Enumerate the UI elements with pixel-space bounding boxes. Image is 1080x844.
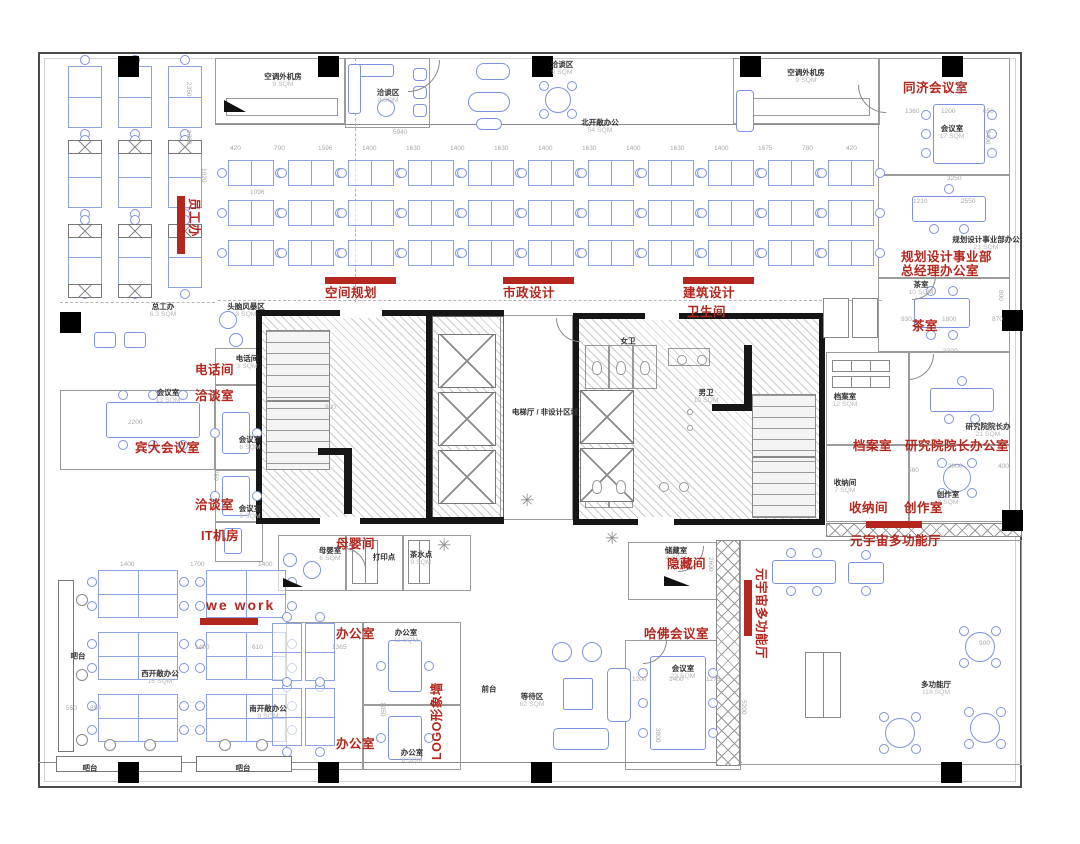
desk-chair (757, 168, 767, 178)
zone-label: 洽谈室 (195, 499, 234, 512)
sink-fixture (697, 355, 707, 365)
zone-label: we work (206, 598, 275, 612)
dimension-text: 1400 (714, 146, 728, 153)
structural-column (318, 56, 339, 77)
workstation-divider (311, 200, 312, 226)
zone-label-bar (683, 277, 754, 284)
room-area: 10 SQM (909, 289, 934, 296)
black-wall (432, 310, 504, 316)
dimension-text: 700 (274, 146, 285, 153)
zone-label: 研究院院长办公室 (905, 440, 1009, 453)
desk-chair (315, 747, 325, 757)
desk-chair (217, 208, 227, 218)
room-name: 茶水点 (410, 550, 433, 559)
workstation-divider (551, 200, 552, 226)
room-label: 收纳间7 SQM (834, 478, 857, 494)
dimension-text: 3800 (654, 728, 661, 742)
room-name: 多功能厅 (921, 680, 951, 689)
desk-chair (87, 663, 97, 673)
room-label: 茶室10 SQM (909, 280, 934, 296)
room-label: 吧台 (71, 652, 86, 661)
sink-fixture (677, 355, 687, 365)
room-name: 洽谈区 (551, 60, 574, 69)
workstation-divider (611, 160, 612, 186)
dimension-text: 900 (979, 641, 990, 648)
desk-chair (638, 698, 648, 708)
storage-cross-unit (118, 284, 152, 298)
desk-chair (959, 658, 969, 668)
dimension-text: 1596 (318, 146, 332, 153)
dimension-text: 400 (998, 464, 1009, 471)
desk-chair (817, 208, 827, 218)
desk-chair (817, 248, 827, 258)
desk-chair (376, 733, 386, 743)
desk-chair (337, 208, 347, 218)
room-name: 会议室 (671, 664, 696, 673)
round-table (885, 718, 915, 748)
cabinet-cell (852, 361, 871, 371)
cabinet (832, 376, 890, 388)
round-table (582, 642, 602, 662)
dimension-text: 1050 (379, 702, 386, 716)
desk-chair (287, 601, 297, 611)
dimension-text: 1800 (942, 317, 956, 324)
dimension-text: 2600 (707, 557, 714, 571)
structural-column (531, 762, 552, 783)
desk-chair (87, 577, 97, 587)
workstation-divider (551, 160, 552, 186)
dimension-text: 850 (90, 706, 101, 713)
storage-cross-unit (68, 284, 102, 298)
desk-chair (179, 639, 189, 649)
room-name: 北开敞办公 (581, 118, 619, 127)
room-label: 档案室12 SQM (833, 392, 858, 408)
dimension-text: 550 (66, 706, 77, 713)
desk-chair (996, 707, 1006, 717)
bar-stool (76, 734, 88, 746)
dimension-text: 2000 (948, 464, 962, 471)
workstation-divider (311, 240, 312, 266)
room-label: 办公室11 SQM (394, 628, 418, 644)
room-area: 6 SQM (239, 513, 262, 520)
round-table (283, 553, 297, 567)
black-wall (712, 404, 752, 411)
room-label: 会议室6 SQM (239, 504, 262, 520)
room-label: 电梯厅 / 非设计区域 (512, 408, 578, 417)
bench-divider (168, 97, 202, 98)
room-area: 9 SQM (249, 713, 287, 720)
room-label: 洽谈区9 SQM (551, 60, 574, 76)
desk-chair (637, 248, 647, 258)
door-wedge (664, 576, 690, 586)
workstation-divider (851, 240, 852, 266)
dimension-text: 1630 (406, 146, 420, 153)
storage-cross-unit (118, 224, 152, 238)
meeting-table (124, 332, 146, 348)
room-area: 54 SQM (581, 127, 619, 134)
desk-chair (539, 109, 549, 119)
structural-column (60, 312, 81, 333)
dimension-text: 1630 (582, 146, 596, 153)
elevator-shaft (438, 392, 496, 446)
desk-chair (315, 677, 325, 687)
desk-chair (757, 248, 767, 258)
black-wall (432, 517, 504, 524)
cabinet-cell (824, 653, 841, 717)
black-wall (344, 448, 352, 514)
desk-chair (567, 81, 577, 91)
room-name: 打印点 (373, 553, 396, 562)
toilet-fixture (592, 480, 602, 494)
desk-chair (315, 612, 325, 622)
structural-column (118, 762, 139, 783)
bench-divider (272, 652, 302, 653)
room-name: 会议室 (940, 124, 965, 133)
pod-divider (98, 656, 178, 657)
desk-chair (457, 168, 467, 178)
room-label: 总工办6.3 SQM (150, 302, 177, 318)
wall-opening (645, 309, 679, 320)
room-label: 研究院院长办21 SQM (966, 422, 1011, 438)
room-area: 9 SQM (787, 77, 825, 84)
desk-chair (577, 248, 587, 258)
desk-chair (179, 701, 189, 711)
workstation-divider (791, 200, 792, 226)
desk-chair (80, 55, 90, 65)
desk-chair (179, 725, 189, 735)
desk-chair (397, 248, 407, 258)
toilet-fixture (616, 480, 626, 494)
room-label: 吧台 (83, 764, 98, 773)
cabinet-cell (853, 299, 877, 337)
desk-chair (959, 224, 969, 234)
meeting-table (848, 562, 884, 584)
room-name: 会议室 (239, 435, 262, 444)
room-area: 9 SQM (551, 69, 574, 76)
room-name: 规划设计事业部办公 (952, 235, 1020, 244)
room-label: 洽谈区9 SQM (377, 88, 400, 104)
desk-chair (517, 168, 527, 178)
black-wall (318, 448, 352, 455)
cabinet-cell (833, 377, 852, 387)
desk-chair (179, 663, 189, 673)
dimension-text: 1700 (190, 562, 204, 569)
room-label: 女卫 (621, 337, 636, 346)
room-label: 空调外机房9 SQM (787, 68, 825, 84)
cabinet-cell (833, 361, 852, 371)
room-name: 头脑风暴区 (227, 302, 265, 311)
dimension-text: 1675 (758, 146, 772, 153)
room-area: 118 SQM (921, 689, 951, 696)
desk-chair (424, 661, 434, 671)
workstation-divider (491, 240, 492, 266)
desk-chair (812, 548, 822, 558)
desk-chair (637, 208, 647, 218)
workstation-divider (791, 160, 792, 186)
desk-chair (195, 663, 205, 673)
cabinet (852, 298, 878, 338)
desk-chair (397, 208, 407, 218)
cabinet-cell (824, 299, 848, 337)
structural-column (1002, 310, 1023, 331)
dimension-text: 1400 (195, 645, 209, 652)
structural-column (1002, 510, 1023, 531)
zone-label: 规划设计事业部 (901, 251, 992, 264)
workstation-divider (251, 240, 252, 266)
room-label: 办公室8 SQM (401, 748, 424, 764)
room-area: 21 SQM (966, 431, 1011, 438)
desk-chair (875, 168, 885, 178)
dimension-text: 870 (992, 317, 1003, 324)
desk-chair (996, 739, 1006, 749)
sofa (468, 92, 510, 112)
desk-chair (539, 81, 549, 91)
dimension-text: 2350 (185, 82, 192, 96)
sofa (553, 728, 609, 750)
workstation-divider (491, 200, 492, 226)
room-label: 头脑风暴区3 SQM (227, 302, 265, 318)
room-area: 9 SQM (377, 97, 400, 104)
bar-stool (219, 739, 231, 751)
bench-divider (68, 177, 102, 178)
structural-column (942, 56, 963, 77)
dimension-text: 1400 (626, 146, 640, 153)
desk-chair (964, 739, 974, 749)
desk-chair (118, 390, 128, 400)
desk-chair (991, 658, 1001, 668)
zone-label: 卫生间 (687, 306, 726, 319)
workstation-divider (311, 160, 312, 186)
toilet-fixture (640, 361, 650, 375)
zone-label: 电话间 (195, 364, 234, 377)
desk-chair (757, 208, 767, 218)
zone-label: 母婴间 (336, 538, 375, 551)
dimension-text: 610 (252, 645, 263, 652)
zone-label: 宾大会议室 (135, 442, 200, 455)
room-name: 办公室 (401, 748, 424, 757)
room-name: 创作室 (937, 490, 960, 499)
desk-chair (277, 208, 287, 218)
room-label: 电话间3 SQM (236, 354, 259, 370)
desk-chair (252, 491, 262, 501)
workstation-divider (491, 160, 492, 186)
desk-chair (217, 168, 227, 178)
workstation-divider (551, 240, 552, 266)
zone-label: 创作室 (904, 502, 943, 515)
workstation-divider (431, 160, 432, 186)
desk-chair (87, 639, 97, 649)
structural-column (941, 762, 962, 783)
dimension-text: 2200 (128, 420, 142, 427)
room-name: 女卫 (621, 337, 636, 346)
dimension-text: 1400 (120, 562, 134, 569)
dimension-text: 420 (846, 146, 857, 153)
room-area: 16 SQM (141, 678, 179, 685)
room-name: 空调外机房 (787, 68, 825, 77)
meeting-table (930, 388, 994, 412)
workstation-divider (611, 200, 612, 226)
room-label: 空调外机房9 SQM (264, 72, 302, 88)
dimension-text: 1400 (538, 146, 552, 153)
room-label: 前台 (482, 685, 497, 694)
dimension-text: 5940 (393, 130, 407, 137)
toilet-fixture (616, 361, 626, 375)
workstation-divider (851, 160, 852, 186)
room-area: 7 SQM (834, 487, 857, 494)
plant-icon: ✳ (520, 492, 534, 509)
room-name: 办公室 (394, 628, 418, 637)
desk-chair (861, 586, 871, 596)
zone-label: 空间规划 (325, 287, 377, 300)
dimension-text: 1365 (332, 645, 346, 652)
desk-chair (921, 129, 931, 139)
bench-divider (305, 717, 335, 718)
sofa (348, 64, 361, 114)
desk-chair (87, 601, 97, 611)
desk-chair (708, 698, 718, 708)
desk-chair (179, 577, 189, 587)
zone-label: LOGO形象墙 (431, 682, 444, 760)
bar-stool (76, 669, 88, 681)
room-name: 会议室 (156, 388, 181, 397)
zone-label-bar (866, 521, 922, 528)
wall-opening (638, 517, 674, 528)
zone-label: 元宇宙多功能厅 (850, 535, 941, 548)
desk-chair (195, 725, 205, 735)
cabinet (805, 652, 841, 718)
dimension-text: 1096 (250, 190, 264, 197)
desk-chair (282, 677, 292, 687)
room-name: 空调外机房 (264, 72, 302, 81)
bench-divider (118, 177, 152, 178)
desk-chair (277, 248, 287, 258)
sofa (476, 63, 510, 80)
dimension-text: 780 (802, 146, 813, 153)
room-name: 男卫 (694, 388, 719, 397)
dimension-text: 1630 (494, 146, 508, 153)
cabinet (832, 360, 890, 372)
workstation-divider (611, 240, 612, 266)
bench-divider (118, 257, 152, 258)
room-label: 南开敞办公9 SQM (249, 704, 287, 720)
room-label: 会议室17 SQM (940, 124, 965, 140)
room-name: 研究院院长办 (966, 422, 1011, 431)
zone-label: 员工办 (188, 198, 201, 237)
room-area: 62 SQM (520, 701, 545, 708)
room-label: 打印点 (373, 553, 396, 562)
sofa (563, 678, 593, 710)
desk-chair (517, 208, 527, 218)
door-wedge (283, 578, 303, 587)
lattice-wall (716, 540, 740, 766)
dimension-text: 800 (997, 290, 1004, 301)
room-label: 北开敞办公54 SQM (581, 118, 619, 134)
room-label: 会议室13 SQM (156, 388, 181, 404)
room-area: 6.3 SQM (150, 311, 177, 318)
dimension-text: 1020 (200, 168, 207, 182)
dimension-text: 1200 (632, 677, 646, 684)
room-area: 3 SQM (227, 311, 265, 318)
workstation-divider (371, 240, 372, 266)
dimension-text: 1080 (956, 80, 963, 94)
room-label: 吧台 (236, 764, 251, 773)
bar-stool (256, 739, 268, 751)
zone-label: 茶室 (912, 320, 938, 333)
dimension-text: 1275 (706, 677, 720, 684)
storage-cross-unit (118, 140, 152, 154)
desk-chair (875, 248, 885, 258)
structural-column (118, 56, 139, 77)
zone-label: 洽谈室 (195, 390, 234, 403)
workstation-divider (371, 160, 372, 186)
room-name: 吧台 (236, 764, 251, 773)
room-name: 会议室 (239, 504, 262, 513)
partition-wall (742, 98, 870, 116)
dimension-text: 3250 (947, 176, 961, 183)
workstation-divider (731, 240, 732, 266)
elevator-shaft (438, 450, 496, 504)
door-wedge (224, 100, 246, 112)
bar-counter (58, 580, 74, 752)
desk-chair (812, 586, 822, 596)
desk-chair (337, 248, 347, 258)
dashed-boundary (218, 300, 882, 301)
room-label: 等待区62 SQM (520, 692, 545, 708)
room-name: 等待区 (520, 692, 545, 701)
desk-chair (957, 376, 967, 386)
desk-chair (911, 712, 921, 722)
desk-chair (457, 248, 467, 258)
desk-chair (180, 289, 190, 299)
room-name: 南开敞办公 (249, 704, 287, 713)
desk-chair (337, 168, 347, 178)
dimension-text: 1200 (941, 109, 955, 116)
desk-chair (210, 428, 220, 438)
wall-line (215, 124, 880, 125)
dimension-text: 1400 (450, 146, 464, 153)
meeting-table (388, 640, 422, 692)
dimension-text: 3300 (943, 349, 957, 356)
workstation-divider (251, 160, 252, 186)
desk-chair (457, 208, 467, 218)
meeting-table (772, 560, 836, 584)
bar-stool (144, 739, 156, 751)
dimension-text: 750 (212, 470, 219, 481)
dimension-text: 2550 (961, 199, 975, 206)
zone-label: 档案室 (853, 440, 892, 453)
room-area: 13 SQM (156, 397, 181, 404)
workstation-divider (791, 240, 792, 266)
dimension-text: 1360 (905, 109, 919, 116)
dimension-text: 1400 (362, 146, 376, 153)
desk-chair (195, 701, 205, 711)
desk-chair (967, 458, 977, 468)
zone-label-bar (200, 618, 258, 625)
desk-chair (577, 208, 587, 218)
bar-stool (76, 594, 88, 606)
zone-label: IT机房 (201, 530, 239, 543)
zone-label: 总经理办公室 (901, 265, 979, 278)
workstation-divider (371, 200, 372, 226)
pod-divider (98, 718, 178, 719)
room-area: 10 SQM (694, 397, 719, 404)
elevator-shaft (580, 390, 634, 444)
room-label: 茶水点9 SQM (410, 550, 433, 566)
workstation-divider (431, 200, 432, 226)
bench-divider (168, 257, 202, 258)
dimension-text: 420 (230, 146, 241, 153)
desk-chair (282, 612, 292, 622)
